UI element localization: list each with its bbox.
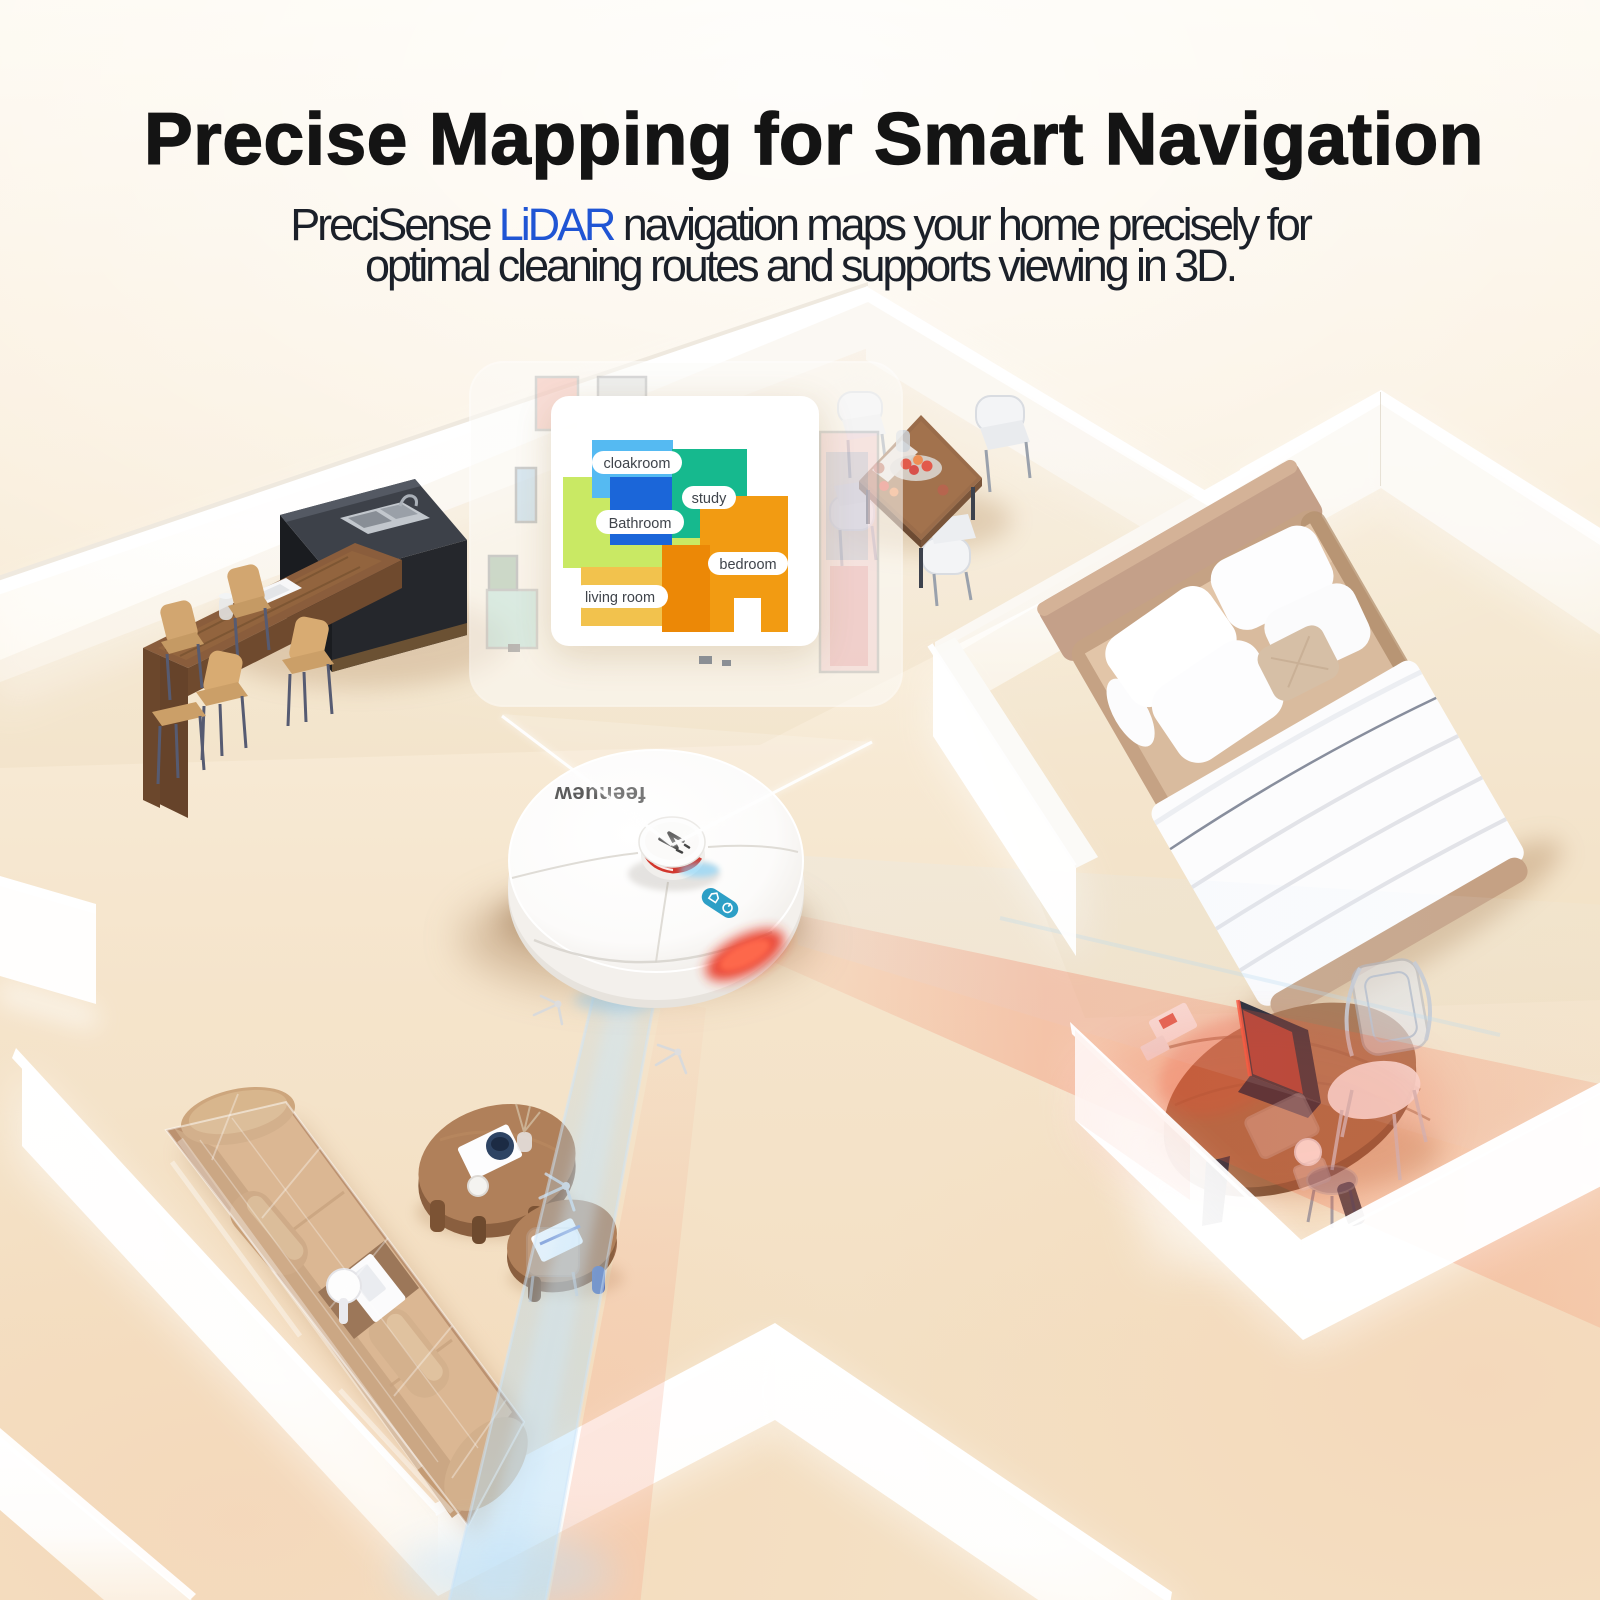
- svg-text:study: study: [692, 491, 727, 507]
- svg-text:optimal cleaning routes and su: optimal cleaning routes and supports vie…: [365, 240, 1235, 291]
- svg-text:cloakroom: cloakroom: [604, 456, 671, 472]
- svg-text:living room: living room: [585, 590, 655, 606]
- svg-text:Precise Mapping for Smart Navi: Precise Mapping for Smart Navigation: [144, 99, 1484, 180]
- svg-text:bedroom: bedroom: [719, 557, 776, 573]
- svg-text:Bathroom: Bathroom: [609, 516, 672, 532]
